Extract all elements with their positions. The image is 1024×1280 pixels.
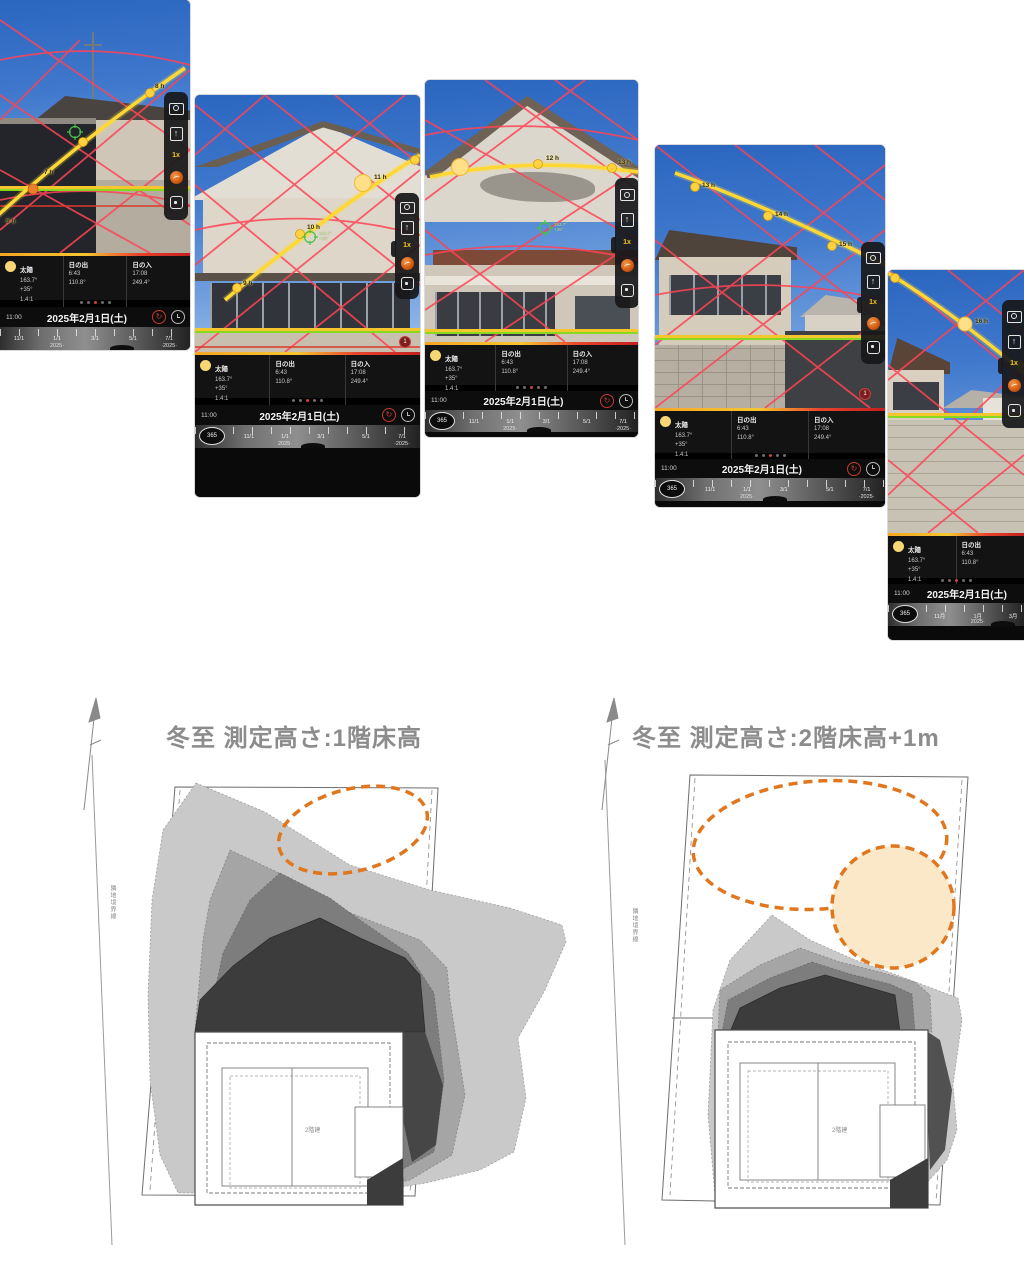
share-icon[interactable]: ↑: [867, 275, 880, 289]
clock-button[interactable]: [401, 408, 415, 422]
phone-screenshot-4: 13 h 14 h 15 h 1 ↑ 1x 太陽 163.7° +35°: [655, 145, 885, 507]
zoom-level-button[interactable]: 1x: [172, 152, 180, 159]
hour-label: 8 h: [155, 84, 164, 91]
clock-button[interactable]: [866, 462, 880, 476]
reset-date-button[interactable]: ↻: [847, 462, 861, 476]
camera-toolbar: ↑ 1x: [164, 92, 188, 220]
sun-icon: [430, 350, 441, 361]
share-icon[interactable]: ↑: [401, 221, 414, 235]
compass-icon[interactable]: [401, 257, 414, 270]
gesture-icon[interactable]: [401, 277, 414, 290]
sun-info-panel: 太陽 163.7° +35° 1.4:1 日の出 6:43 110.8° 日の入…: [195, 352, 420, 398]
clock-button[interactable]: [619, 394, 633, 408]
date-label: 2025年2月1日(土): [217, 408, 382, 423]
reset-date-button[interactable]: ↻: [382, 408, 396, 422]
diagram-title: 冬至 測定高さ:1階床高: [166, 718, 422, 753]
slider-ticks: [655, 480, 885, 487]
time-label: 11:00: [894, 590, 910, 597]
sun-column: 太陽 163.7° +35° 1.4:1: [0, 256, 63, 307]
house-label: 2階建: [832, 1125, 847, 1134]
current-date-notch: [110, 345, 134, 350]
sun-info-panel: 太陽 163.7° +35° 1.4:1 日の出 6:43 110.8°: [888, 533, 1024, 578]
sun-info-panel: 太陽 163.7° +35° 1.4:1 日の出 6:43 110.8° 日の入…: [0, 253, 190, 300]
gesture-icon[interactable]: [621, 284, 634, 297]
sunpath-overlay: [425, 80, 638, 342]
gesture-icon[interactable]: [1008, 404, 1021, 417]
sunset-column: 日の入 17:08 249.4°: [126, 256, 190, 307]
camera-toolbar: ↑ 1x: [861, 242, 885, 364]
page-indicator[interactable]: [655, 454, 885, 457]
sunpath-overlay: [0, 0, 190, 253]
phone-screenshot-3: 12 h 13 h 163.7°+35° ↑ 1x 太陽 163.7°: [425, 80, 638, 437]
page-indicator[interactable]: [888, 579, 1024, 582]
mode-365-button[interactable]: 365: [199, 427, 225, 445]
shadow-diagram-2f: 冬至 測定高さ:2階床高+1m 隣地境界線 2階建: [580, 690, 1024, 1260]
date-row: 11:00 2025年2月1日(土) ↻: [195, 405, 420, 425]
crosshair-readout: 163.7°+35°: [319, 231, 332, 242]
marker-badge[interactable]: 1: [399, 336, 411, 348]
gesture-icon[interactable]: [170, 196, 183, 209]
camera-photo: 16 h ↑ 1x: [888, 270, 1024, 533]
hour-label: 6 h: [6, 219, 15, 226]
compass-icon[interactable]: [621, 259, 634, 272]
gesture-icon[interactable]: [867, 341, 880, 354]
sun-icon: [893, 541, 904, 552]
mode-365-button[interactable]: 365: [659, 480, 685, 498]
camera-toolbar: ↑ 1x: [1002, 300, 1024, 428]
sun-info-panel: 太陽 163.7° +35° 1.4:1 日の出 6:43 110.8° 日の入…: [655, 408, 885, 453]
zoom-level-button[interactable]: 1x: [869, 299, 877, 306]
mode-365-button[interactable]: 365: [429, 412, 455, 430]
date-slider[interactable]: 365 11月 1月 3月 2025·: [888, 603, 1024, 626]
time-label: 11:00: [661, 465, 677, 472]
zoom-level-button[interactable]: 1x: [623, 239, 631, 246]
compass-icon[interactable]: [1008, 379, 1021, 392]
hour-label: 15 h: [839, 242, 852, 249]
date-row: 11:00 2025年2月1日(土) ↻: [425, 391, 638, 410]
shadow-diagram-1f: 冬至 測定高さ:1階床高 隣地境界線 2階建: [60, 690, 580, 1260]
camera-icon[interactable]: [620, 189, 635, 201]
phone-screenshot-5: 16 h ↑ 1x 太陽 163.7° +35° 1.4:1: [888, 270, 1024, 640]
time-label: 11:00: [201, 412, 217, 419]
crosshair-target: [67, 124, 83, 140]
hour-label: 16 h: [975, 319, 988, 326]
bottom-padding: [888, 626, 1024, 640]
reset-date-button[interactable]: ↻: [152, 310, 166, 324]
date-slider[interactable]: 365 11/1 1/1 3/1 5/1 7/1 2025· ·2025·: [655, 478, 885, 501]
share-icon[interactable]: ↑: [1008, 335, 1021, 349]
slider-ticks: [195, 427, 420, 434]
time-label: 11:00: [431, 397, 447, 404]
share-icon[interactable]: ↑: [170, 127, 183, 141]
camera-icon[interactable]: [1007, 311, 1022, 323]
date-slider[interactable]: 11/1 1/1 3/1 5/1 7/1 2025· ·2025·: [0, 327, 190, 350]
boundary-label: 隣地境界線: [630, 908, 639, 943]
mode-365-button[interactable]: 365: [892, 605, 918, 623]
date-slider[interactable]: 365 11/1 1/1 3/1 5/1 7/1 2025· ·2025·: [425, 410, 638, 432]
hour-label: 7 h: [44, 170, 53, 177]
time-label: 11:00: [6, 314, 22, 321]
north-arrow: [602, 698, 619, 810]
sunpath-overlay: [655, 145, 885, 408]
north-arrow: [84, 698, 101, 810]
date-label: 2025年2月1日(土): [22, 310, 152, 325]
camera-photo: 6 h 7 h 8 h ↑ 1x: [0, 0, 190, 253]
sun-icon: [5, 261, 16, 272]
hour-label: 11 h: [374, 175, 387, 182]
sun-info-panel: 太陽 163.7° +35° 1.4:1 日の出 6:43 110.8° 日の入…: [425, 342, 638, 385]
camera-toolbar: ↑ 1x: [615, 178, 638, 308]
date-row: 11:00 2025年2月1日(土) ↻: [0, 307, 190, 327]
compass-icon[interactable]: [867, 317, 880, 330]
date-label: 2025年2月1日(土): [910, 586, 1024, 601]
date-row: 11:00 2025年2月1日(土) ↻: [655, 459, 885, 478]
marker-badge[interactable]: 1: [859, 388, 871, 400]
compass-icon[interactable]: [170, 171, 183, 184]
camera-photo: 12 h 13 h 163.7°+35° ↑ 1x: [425, 80, 638, 342]
camera-photo: 13 h 14 h 15 h 1 ↑ 1x: [655, 145, 885, 408]
date-slider[interactable]: 365 11/1 1/1 3/1 5/1 7/1 2025· ·2025·: [195, 425, 420, 448]
page-indicator[interactable]: [0, 301, 190, 304]
camera-photo: 9 h 10 h 11 h 163.7°+35° 1 ↑ 1x: [195, 95, 420, 352]
crosshair-readout: 163.7°+35°: [554, 222, 567, 233]
slider-ticks: [0, 329, 190, 336]
phone-screenshot-1: 6 h 7 h 8 h ↑ 1x 太陽 163.7° +35° 1.4:1: [0, 0, 190, 350]
zoom-level-button[interactable]: 1x: [403, 242, 411, 249]
page-indicator[interactable]: [195, 399, 420, 402]
slider-ticks: [425, 412, 638, 419]
hour-label: 9 h: [243, 281, 252, 288]
diagram-title: 冬至 測定高さ:2階床高+1m: [632, 718, 940, 753]
bottom-padding: [425, 432, 638, 437]
hour-label: 14 h: [775, 212, 788, 219]
camera-icon[interactable]: [400, 202, 415, 214]
screenshot-collage: 6 h 7 h 8 h ↑ 1x 太陽 163.7° +35° 1.4:1: [0, 0, 1024, 1280]
camera-icon[interactable]: [169, 103, 184, 115]
sun-icon: [200, 360, 211, 371]
boundary-label: 隣地境界線: [108, 885, 117, 920]
date-label: 2025年2月1日(土): [677, 461, 847, 476]
page-indicator[interactable]: [425, 386, 638, 389]
hour-label: 13 h: [618, 160, 631, 167]
date-row: 11:00 2025年2月1日(土): [888, 584, 1024, 603]
share-icon[interactable]: ↑: [621, 213, 634, 227]
bottom-padding: [195, 448, 420, 497]
sunrise-column: 日の出 6:43 110.8°: [63, 256, 127, 307]
reset-date-button[interactable]: ↻: [600, 394, 614, 408]
camera-icon[interactable]: [866, 252, 881, 264]
camera-toolbar: ↑ 1x: [395, 193, 419, 299]
hour-label: 12 h: [546, 156, 559, 163]
sunlight-circle: [832, 846, 954, 968]
zoom-level-button[interactable]: 1x: [1010, 360, 1018, 367]
phone-screenshot-2: 9 h 10 h 11 h 163.7°+35° 1 ↑ 1x 太陽: [195, 95, 420, 497]
house-label: 2階建: [305, 1125, 320, 1134]
crosshair-target: [537, 220, 553, 236]
hour-label: 13 h: [702, 183, 715, 190]
sun-icon: [660, 416, 671, 427]
bottom-padding: [655, 501, 885, 507]
clock-button[interactable]: [171, 310, 185, 324]
date-label: 2025年2月1日(土): [447, 393, 600, 408]
